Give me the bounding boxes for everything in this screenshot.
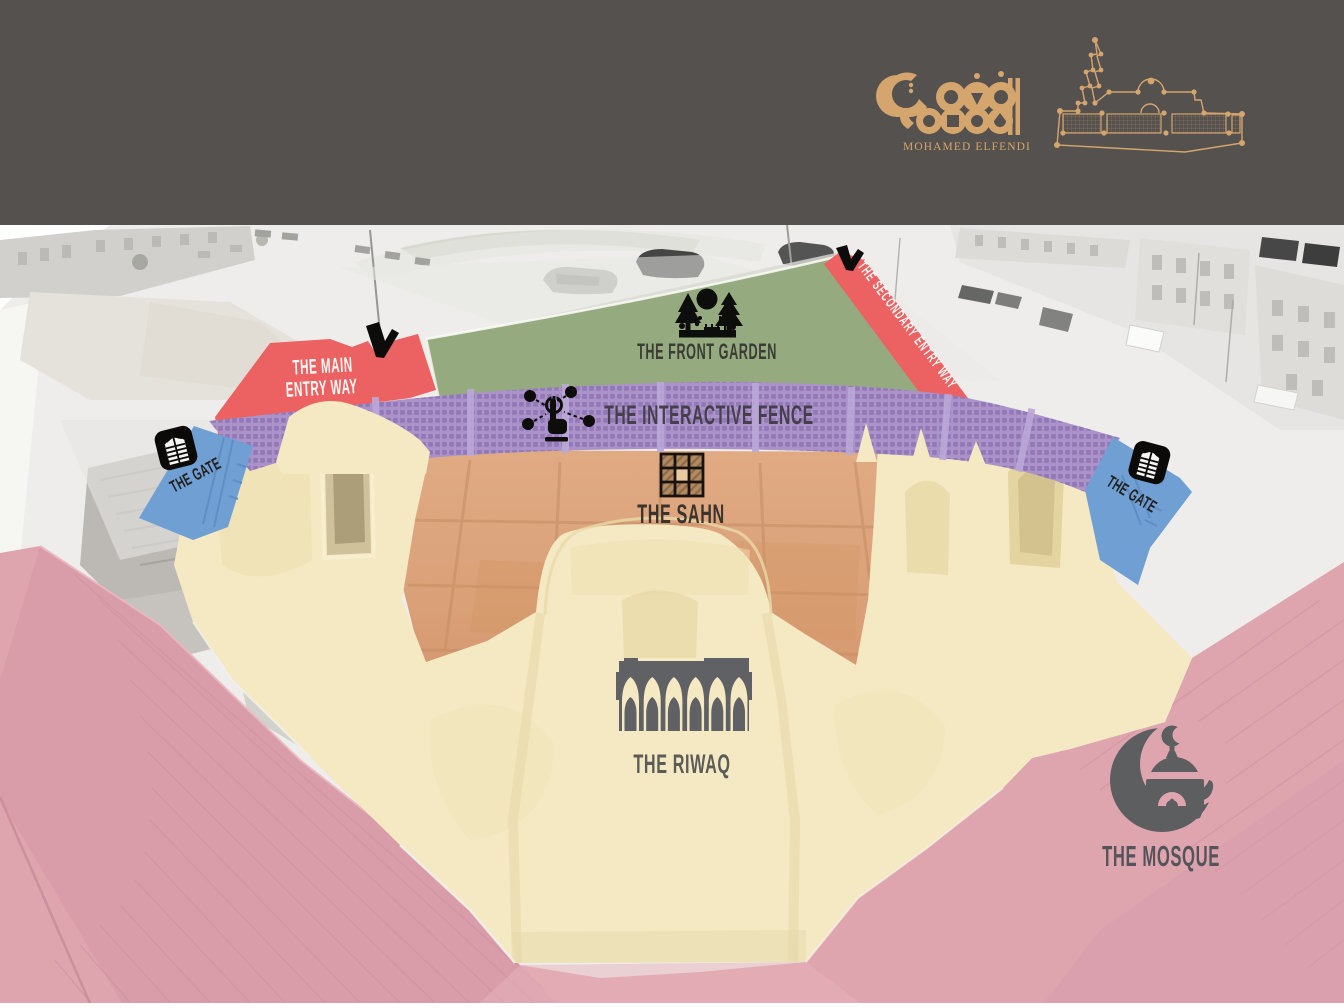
svg-text:THE SAHN: THE SAHN — [637, 499, 725, 529]
svg-text:MOHAMED ELFENDI: MOHAMED ELFENDI — [903, 141, 1031, 153]
svg-text:THE MOSQUE: THE MOSQUE — [1102, 841, 1220, 873]
svg-text:THE RIWAQ: THE RIWAQ — [633, 749, 730, 779]
svg-text:THE INTERACTIVE FENCE: THE INTERACTIVE FENCE — [604, 400, 814, 431]
svg-text:THE FRONT GARDEN: THE FRONT GARDEN — [637, 339, 777, 364]
svg-text:ENTRY WAY: ENTRY WAY — [285, 375, 358, 402]
